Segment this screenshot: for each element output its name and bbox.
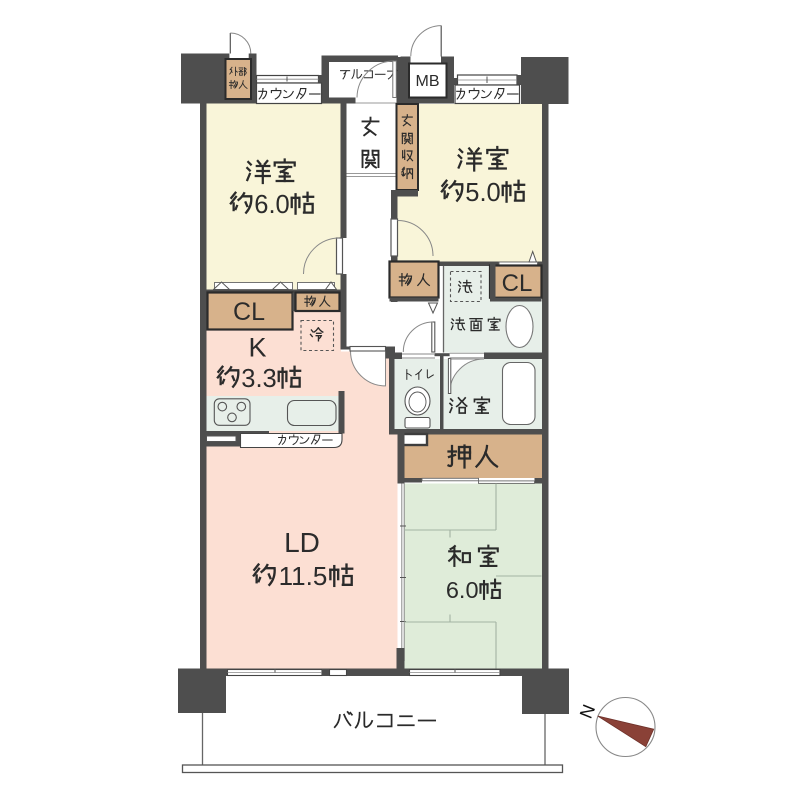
svg-text:CL: CL <box>502 270 533 297</box>
svg-text:LD: LD <box>284 527 320 558</box>
svg-text:MB: MB <box>416 73 440 90</box>
svg-text:N: N <box>576 702 599 722</box>
svg-text:6.0: 6.0 <box>446 577 479 603</box>
svg-text:K: K <box>248 332 266 362</box>
svg-text:11.5: 11.5 <box>279 561 328 591</box>
svg-text:CL: CL <box>233 298 265 326</box>
svg-text:5.0: 5.0 <box>465 179 500 207</box>
svg-text:6.0: 6.0 <box>254 191 289 219</box>
svg-text:3.3: 3.3 <box>241 365 276 393</box>
